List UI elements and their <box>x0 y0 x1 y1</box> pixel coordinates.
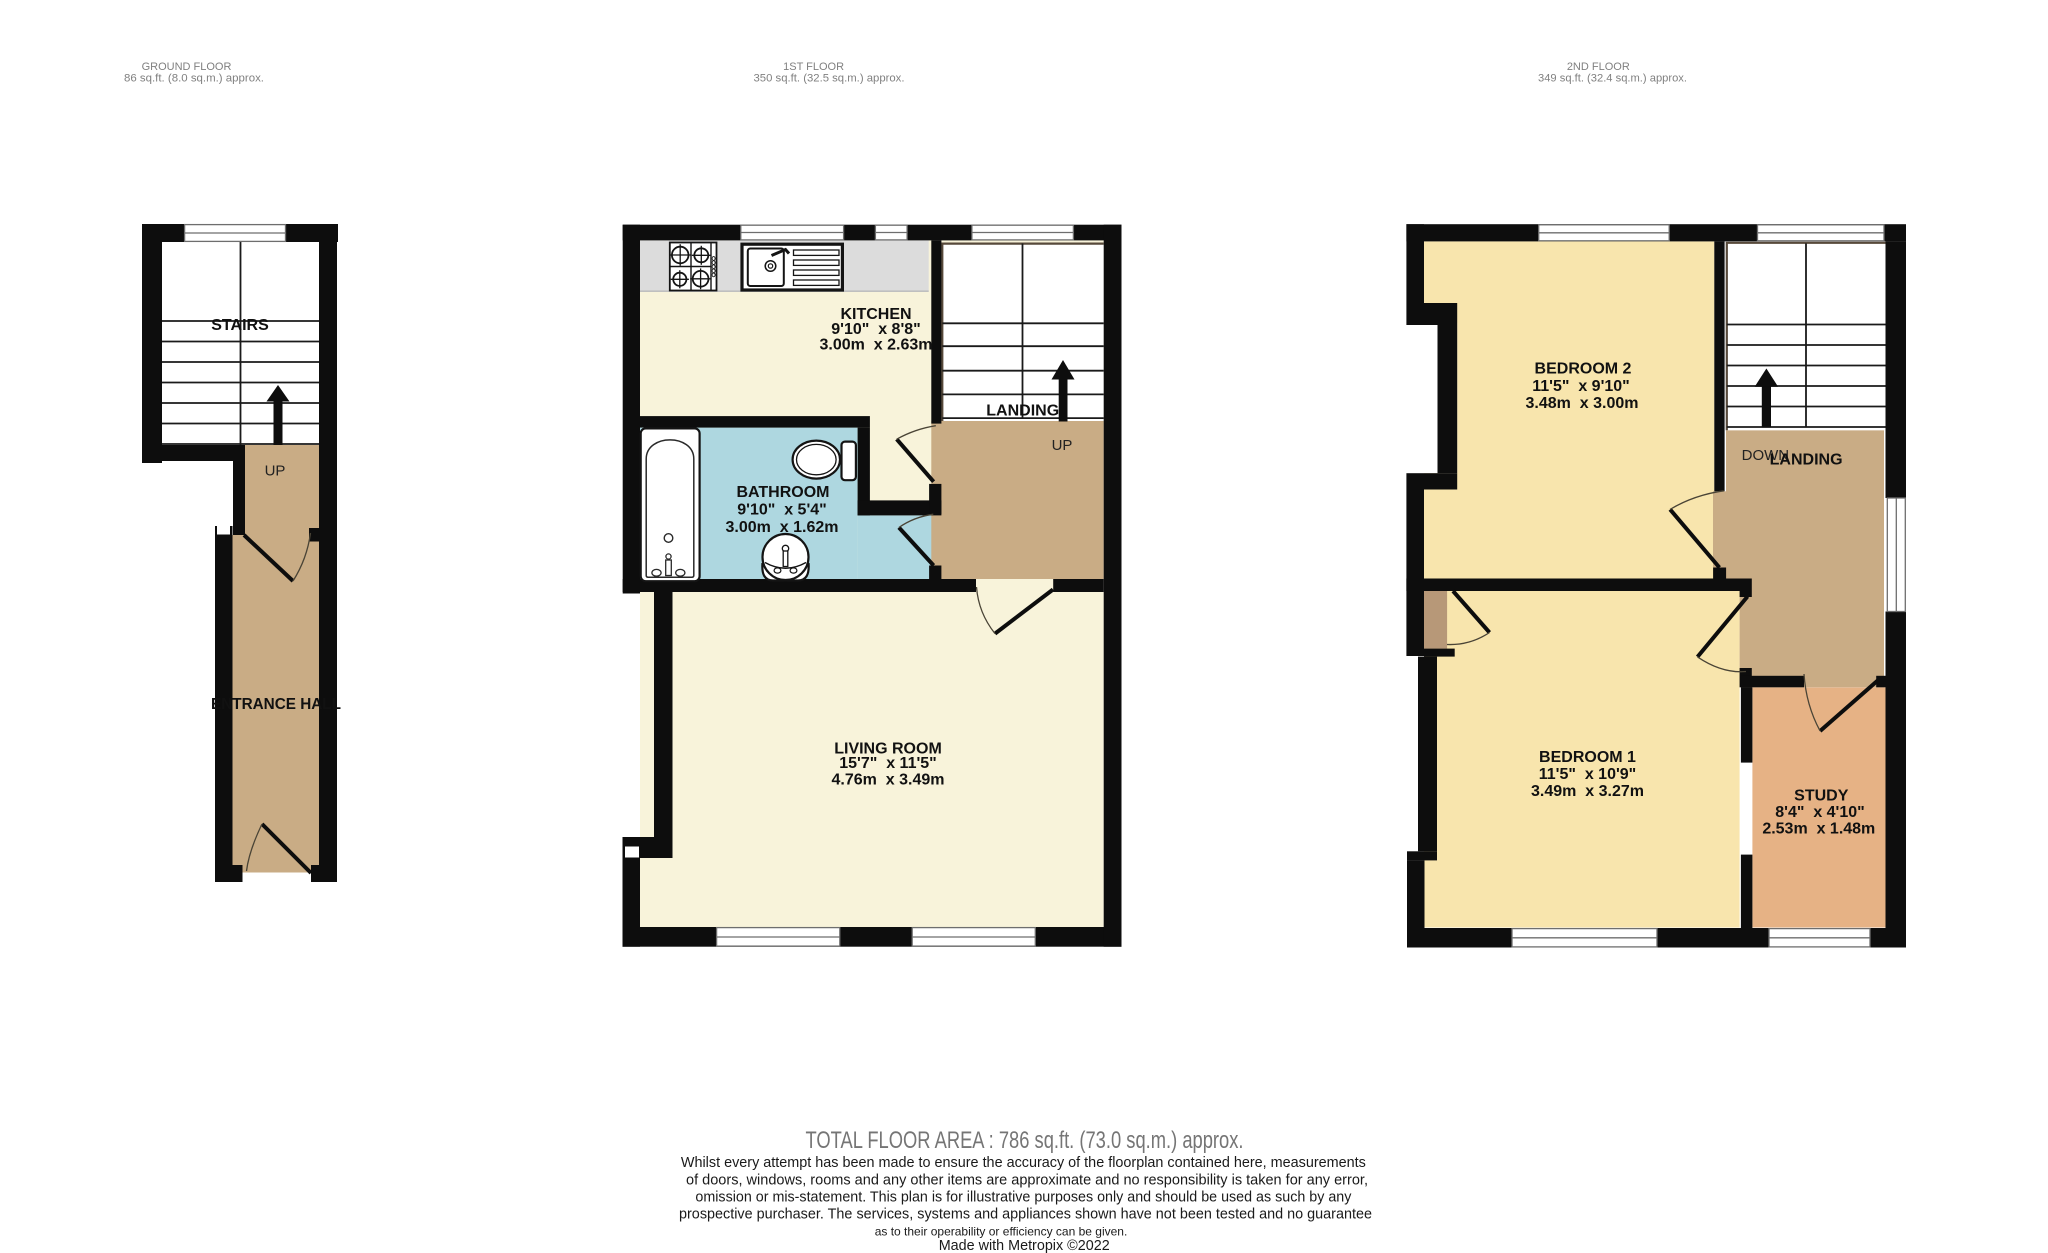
svg-text:9'10" x 5'4": 9'10" x 5'4" <box>737 501 827 518</box>
svg-text:ENTRANCE HALL: ENTRANCE HALL <box>211 696 341 713</box>
svg-text:2.53m x 1.48m: 2.53m x 1.48m <box>1762 821 1875 838</box>
svg-text:LANDING: LANDING <box>986 402 1059 419</box>
svg-text:BEDROOM 2: BEDROOM 2 <box>1535 361 1632 378</box>
svg-text:prospective purchaser. The ser: prospective purchaser. The services, sys… <box>679 1206 1372 1223</box>
svg-text:3.00m x 1.62m: 3.00m x 1.62m <box>726 519 839 536</box>
svg-text:11'5" x 9'10": 11'5" x 9'10" <box>1532 378 1630 395</box>
svg-text:8'4" x 4'10": 8'4" x 4'10" <box>1775 804 1865 821</box>
svg-text:BATHROOM: BATHROOM <box>736 484 829 501</box>
svg-text:86 sq.ft. (8.0 sq.m.) approx.: 86 sq.ft. (8.0 sq.m.) approx. <box>124 73 264 85</box>
svg-text:omission or mis-statement. Thi: omission or mis-statement. This plan is … <box>695 1188 1351 1205</box>
svg-text:STUDY: STUDY <box>1794 788 1849 805</box>
svg-text:3.49m x 3.27m: 3.49m x 3.27m <box>1531 783 1644 800</box>
svg-text:Whilst every attempt has been: Whilst every attempt has been made to en… <box>681 1154 1366 1171</box>
svg-text:BEDROOM 1: BEDROOM 1 <box>1539 749 1636 766</box>
svg-text:2ND FLOOR: 2ND FLOOR <box>1567 61 1630 73</box>
svg-text:Made with Metropix ©2022: Made with Metropix ©2022 <box>939 1237 1110 1253</box>
svg-text:LANDING: LANDING <box>1770 452 1843 469</box>
svg-text:350 sq.ft. (32.5 sq.m.) approx: 350 sq.ft. (32.5 sq.m.) approx. <box>754 73 905 85</box>
svg-text:11'5" x 10'9": 11'5" x 10'9" <box>1539 766 1637 783</box>
svg-text:15'7" x 11'5": 15'7" x 11'5" <box>839 755 937 772</box>
svg-text:3.00m x 2.63m: 3.00m x 2.63m <box>820 336 933 353</box>
svg-text:1ST FLOOR: 1ST FLOOR <box>783 61 844 73</box>
svg-text:UP: UP <box>265 463 286 480</box>
svg-text:GROUND FLOOR: GROUND FLOOR <box>142 61 232 73</box>
svg-text:of doors, windows, rooms and a: of doors, windows, rooms and any other i… <box>686 1171 1368 1188</box>
svg-text:3.48m x 3.00m: 3.48m x 3.00m <box>1526 395 1639 412</box>
svg-text:4.76m x 3.49m: 4.76m x 3.49m <box>832 771 945 788</box>
svg-text:STAIRS: STAIRS <box>211 317 269 334</box>
svg-text:349 sq.ft. (32.4 sq.m.) approx: 349 sq.ft. (32.4 sq.m.) approx. <box>1538 73 1687 85</box>
svg-text:UP: UP <box>1052 437 1073 454</box>
svg-text:TOTAL FLOOR AREA : 786 sq.ft.: TOTAL FLOOR AREA : 786 sq.ft. (73.0 sq.m… <box>806 1127 1244 1154</box>
